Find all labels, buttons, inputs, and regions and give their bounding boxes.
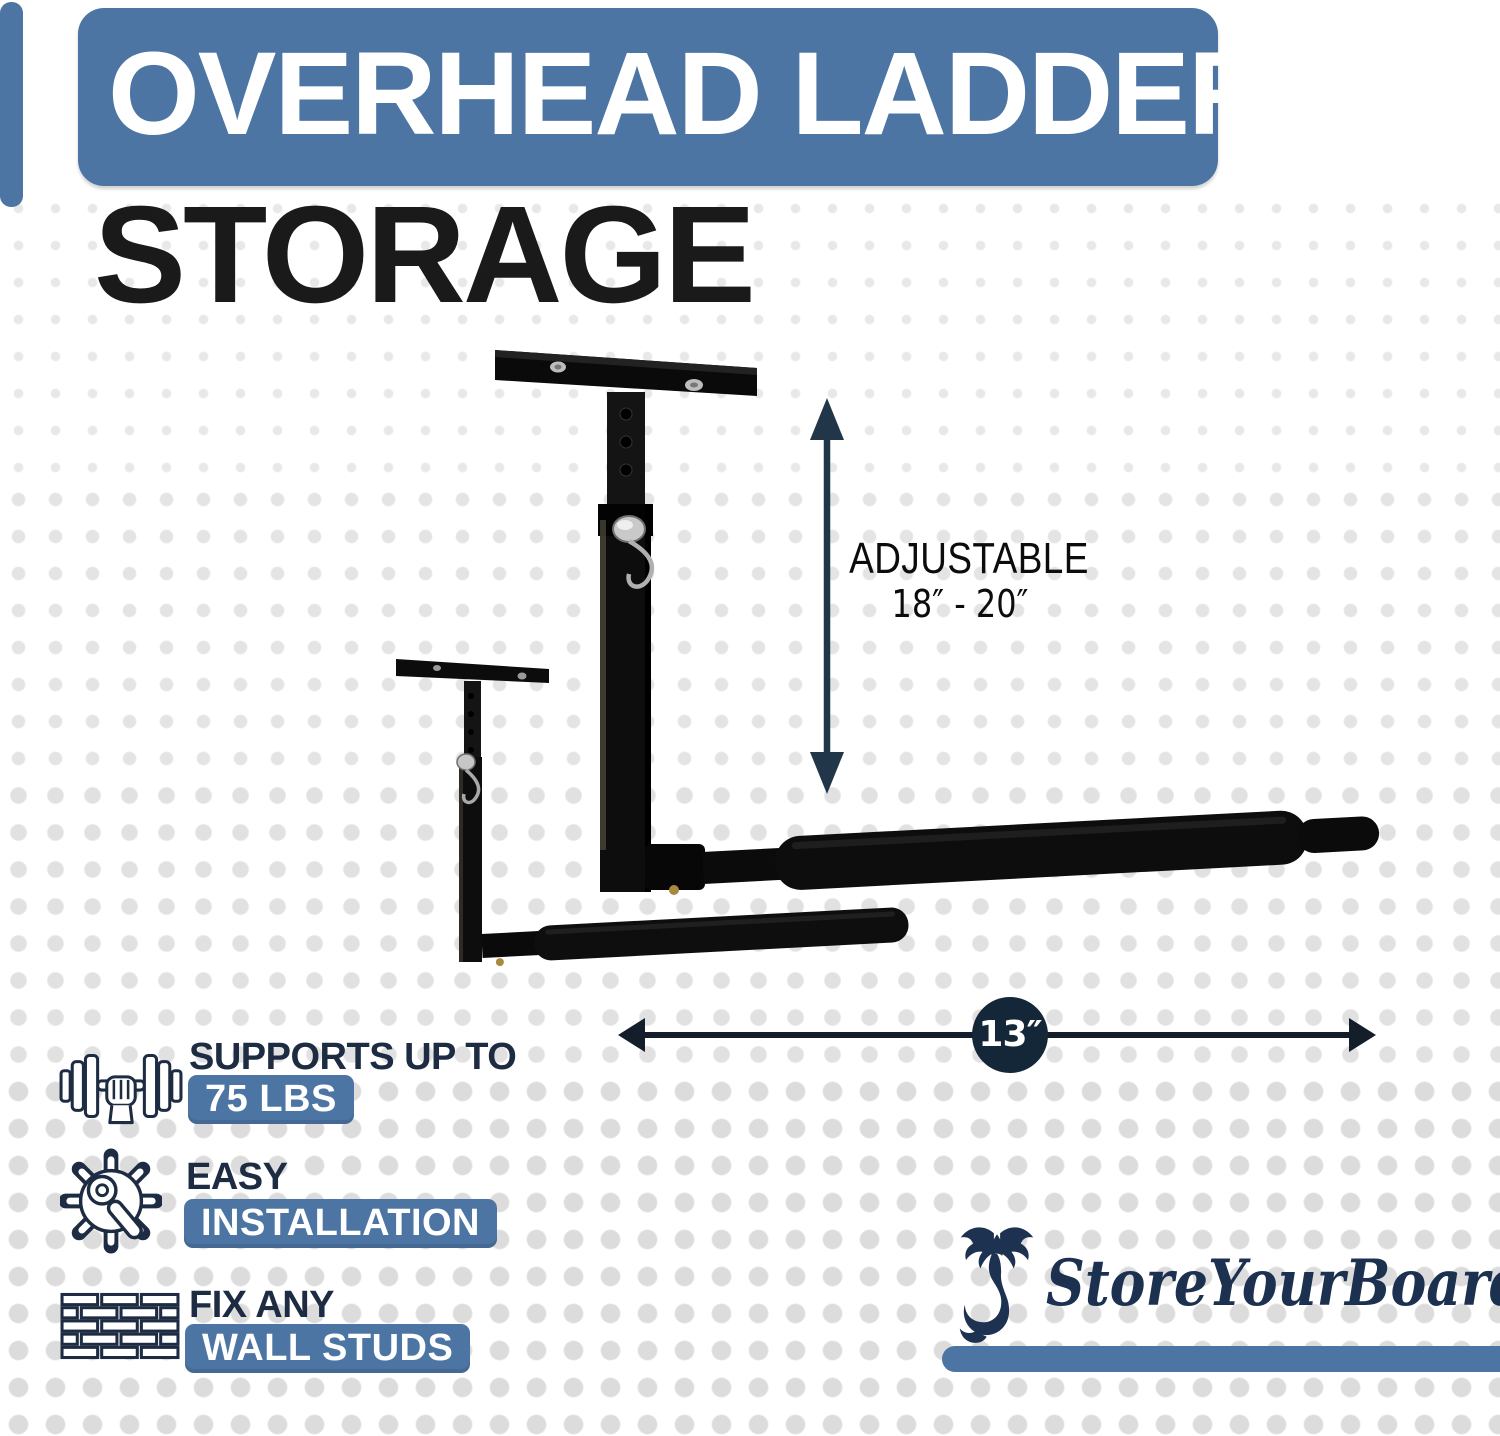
vertical-dimension-arrow bbox=[810, 398, 844, 794]
brand-name: StoreYourBoard bbox=[1046, 1246, 1500, 1321]
rear-gold-pin bbox=[496, 958, 504, 966]
arm-joint-collar bbox=[645, 844, 705, 890]
feature-badge-wallstuds: WALL STUDS bbox=[185, 1324, 470, 1373]
width-dimension-badge: 13″ bbox=[972, 997, 1048, 1073]
feature-badge-installation: INSTALLATION bbox=[184, 1199, 497, 1248]
scorpion-icon bbox=[958, 1226, 1036, 1348]
gear-wrench-icon bbox=[60, 1148, 162, 1254]
rear-storage-arm bbox=[481, 907, 909, 967]
brick-wall-icon bbox=[60, 1292, 180, 1360]
rear-bolt bbox=[433, 665, 441, 671]
feature-heading-fixany: FIX ANY bbox=[189, 1284, 334, 1327]
gold-pin bbox=[669, 885, 679, 895]
rear-bolt bbox=[518, 673, 527, 680]
feature-heading-supports: SUPPORTS UP TO bbox=[189, 1036, 516, 1079]
feature-badge-75lbs: 75 LBS bbox=[188, 1075, 354, 1124]
feature-heading-easy: EASY bbox=[186, 1156, 287, 1199]
storage-arm bbox=[702, 806, 1381, 895]
adjustment-holes bbox=[620, 408, 632, 476]
rear-ceiling-plate bbox=[396, 659, 549, 683]
dumbbell-icon bbox=[58, 1046, 184, 1128]
brand-underline-bar bbox=[942, 1346, 1500, 1372]
adjustment-post-outer bbox=[600, 504, 651, 892]
rear-lock-pin bbox=[457, 754, 475, 770]
adjustable-label: ADJUSTABLE bbox=[849, 534, 1071, 584]
rear-bracket bbox=[396, 659, 910, 967]
product-infographic: OVERHEAD LADDER STORAGE bbox=[0, 0, 1500, 1436]
adjustable-range: 18″ - 20″ bbox=[849, 582, 1071, 626]
